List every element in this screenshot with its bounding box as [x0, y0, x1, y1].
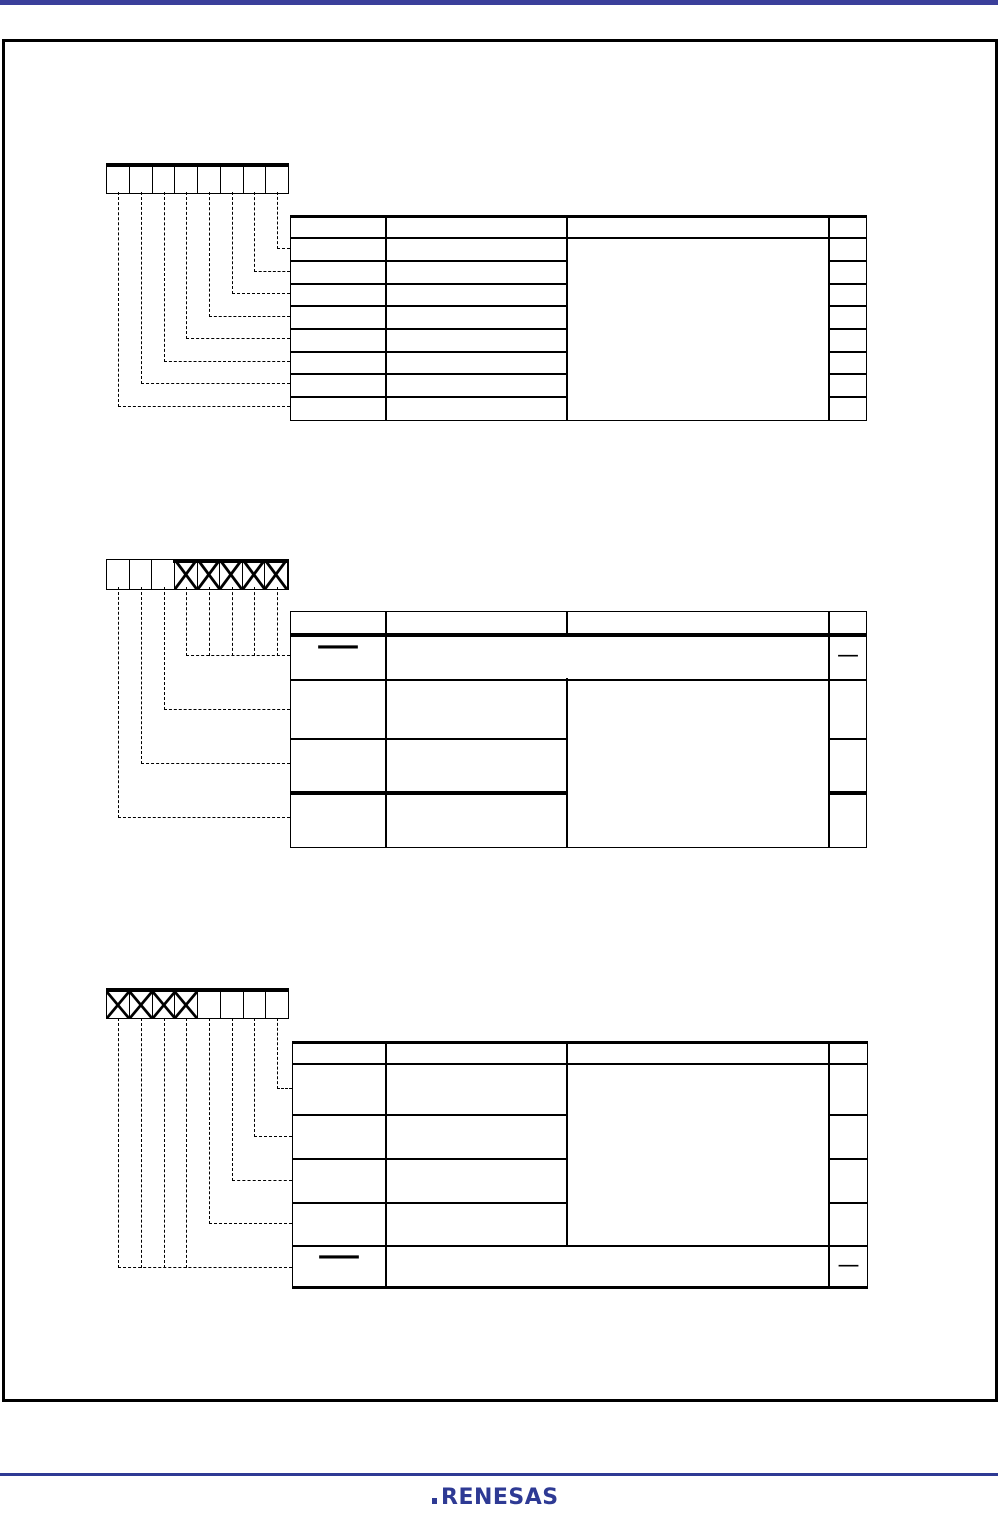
table-grid-line — [828, 351, 866, 353]
bit-description-table — [290, 215, 867, 421]
table-grid-line — [828, 396, 866, 398]
table-grid-line — [566, 678, 568, 847]
table-grid-line — [291, 679, 866, 681]
table-grid-line — [828, 1044, 830, 1286]
bit-cell — [153, 992, 176, 1018]
bit-cell — [107, 560, 130, 589]
reserved-bit-dash: — — [293, 1233, 385, 1277]
bit-cell — [107, 992, 130, 1018]
bit-cell — [198, 992, 221, 1018]
table-grid-line — [385, 612, 387, 847]
table-grid-line — [293, 1063, 867, 1065]
table-grid-line — [828, 283, 866, 285]
bit-cell — [221, 167, 244, 193]
thick-border-segment — [173, 559, 287, 563]
bit-cell — [220, 560, 243, 589]
table-grid-line — [828, 1158, 867, 1160]
reserved-rw-dash: — — [828, 645, 868, 667]
bit-cell — [198, 167, 221, 193]
table-grid-line — [291, 738, 566, 740]
table-grid-line — [566, 1044, 568, 1246]
undefined-bit-x-icon — [265, 560, 287, 589]
bit-connector-line — [186, 587, 290, 656]
bit-cell — [266, 167, 288, 193]
undefined-bit-x-icon — [130, 992, 152, 1018]
document-page: — — — [0, 0, 998, 1515]
undefined-bit-x-icon — [107, 992, 129, 1018]
bit-connector-line — [209, 587, 210, 656]
table-grid-line — [828, 1114, 867, 1116]
table-grid-line — [828, 373, 866, 375]
bit-box-row — [106, 163, 289, 194]
bit-description-table: — — — [290, 611, 867, 848]
table-grid-line — [385, 218, 387, 420]
bit-cell — [244, 992, 267, 1018]
bit-connector-line — [164, 1018, 165, 1268]
reserved-rw-dash: — — [828, 1255, 869, 1277]
bit-connector-line — [186, 1018, 187, 1268]
bit-cell — [107, 167, 130, 193]
table-grid-line — [566, 218, 568, 420]
bit-cell — [175, 992, 198, 1018]
table-grid-line — [291, 305, 566, 307]
bit-connector-line — [141, 1018, 142, 1268]
table-grid-line — [291, 260, 566, 262]
undefined-bit-x-icon — [153, 992, 175, 1018]
table-grid-line — [291, 237, 866, 239]
bit-box-row — [106, 988, 289, 1019]
table-grid-line — [828, 791, 866, 795]
bit-connector-line — [277, 1018, 292, 1089]
table-grid-line — [828, 1202, 867, 1204]
table-grid-line — [291, 396, 566, 398]
bit-cell — [152, 560, 175, 589]
table-grid-line — [291, 328, 566, 330]
bit-cell — [265, 560, 288, 589]
bit-box-row — [106, 559, 289, 590]
renesas-logo-text: RENESAS — [441, 1485, 559, 1510]
table-grid-line — [291, 283, 566, 285]
table-grid-line — [293, 1158, 566, 1160]
table-grid-line — [828, 328, 866, 330]
table-grid-line — [828, 305, 866, 307]
bit-connector-line — [232, 587, 233, 656]
top-blue-bar — [0, 0, 998, 5]
bit-cell — [130, 560, 153, 589]
bit-connector-line — [277, 192, 290, 249]
undefined-bit-x-icon — [220, 560, 242, 589]
bit-connector-line — [277, 587, 278, 656]
table-grid-line — [293, 1114, 566, 1116]
undefined-bit-x-icon — [175, 992, 197, 1018]
table-grid-line — [385, 1044, 387, 1286]
undefined-bit-x-icon — [175, 560, 197, 589]
table-grid-line — [291, 351, 566, 353]
table-grid-line — [566, 612, 568, 633]
table-grid-line — [828, 218, 830, 420]
bit-cell — [244, 167, 267, 193]
table-grid-line — [291, 373, 566, 375]
bit-cell — [221, 992, 244, 1018]
renesas-logo-dot — [432, 1498, 437, 1504]
bit-connector-line — [254, 587, 255, 656]
bit-cell — [175, 560, 198, 589]
undefined-bit-x-icon — [198, 560, 220, 589]
table-grid-line — [293, 1202, 566, 1204]
bit-cell — [130, 167, 153, 193]
bit-cell — [243, 560, 266, 589]
bit-cell — [266, 992, 288, 1018]
table-grid-line — [828, 738, 866, 740]
table-grid-line — [828, 260, 866, 262]
bit-cell — [153, 167, 176, 193]
reserved-bit-dash: — — [291, 623, 385, 667]
table-grid-line — [291, 791, 566, 795]
bit-cell — [175, 167, 198, 193]
bit-description-table: — — — [292, 1041, 868, 1289]
undefined-bit-x-icon — [243, 560, 265, 589]
bit-cell — [130, 992, 153, 1018]
bit-cell — [198, 560, 221, 589]
renesas-logo: RENESAS — [424, 1482, 576, 1510]
footer-rule — [0, 1473, 998, 1476]
